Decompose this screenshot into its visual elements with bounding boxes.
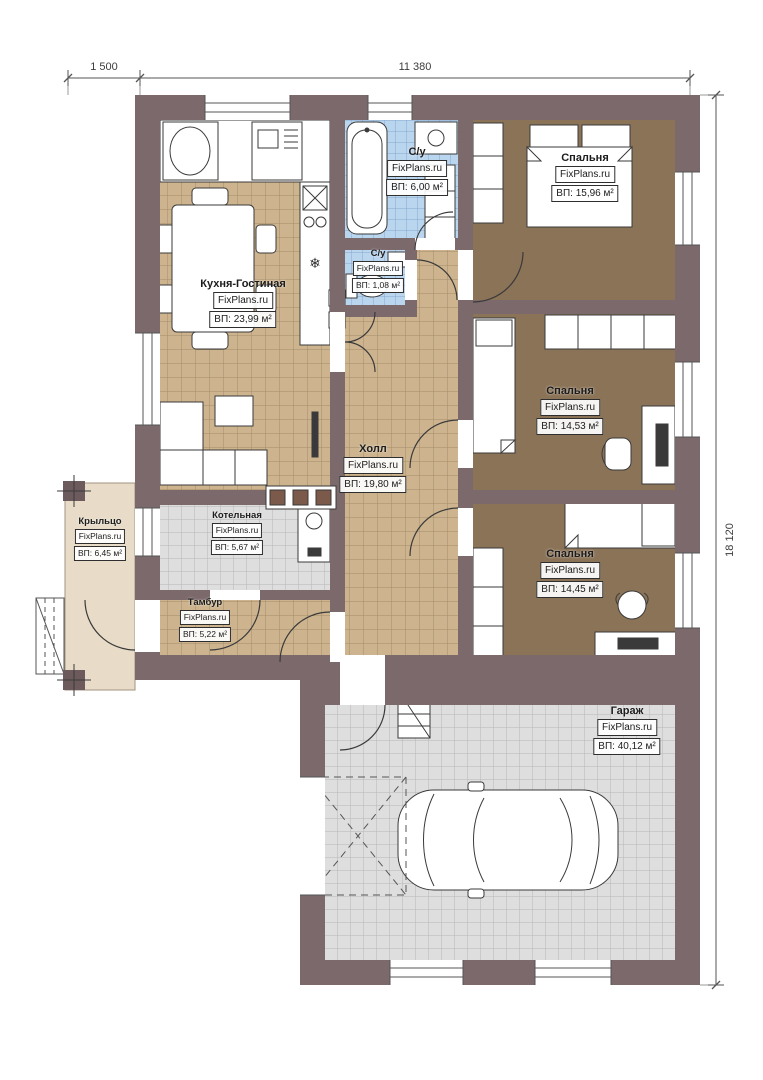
window-boiler-left (135, 508, 160, 556)
window-garage-bottom-2 (535, 960, 611, 985)
window-bedroom-bottom-right (675, 553, 700, 628)
car (398, 782, 618, 898)
wall-hall-bedrooms (458, 120, 473, 655)
porch-floor (65, 483, 135, 690)
floor-plan: ❄ (0, 0, 763, 1080)
window-bedroom-middle-right (675, 362, 700, 437)
floor-plan-drawing: ❄ (0, 0, 763, 1080)
vent-block (266, 486, 336, 509)
window-bath-top (368, 95, 412, 120)
window-bedroom-top-right (675, 172, 700, 245)
garage-gate-opening (300, 777, 325, 895)
wall-wc-bottom (345, 305, 417, 317)
boiler-unit (298, 506, 330, 562)
wall-garage-bottom (300, 960, 700, 985)
window-garage-bottom-1 (390, 960, 463, 985)
vestibule-floor (160, 600, 330, 655)
wall-kitchen-hall (330, 120, 345, 655)
window-living-left (135, 333, 160, 425)
svg-text:❄: ❄ (309, 255, 321, 271)
window-kitchen-top (205, 95, 290, 120)
bedroom-top-furniture (473, 123, 632, 227)
porch-steps (36, 598, 64, 674)
wall-bottom-left (135, 655, 325, 680)
tv (312, 412, 318, 457)
wall-bedroom1-2 (473, 300, 675, 314)
wall-bedroom2-3 (473, 490, 675, 504)
